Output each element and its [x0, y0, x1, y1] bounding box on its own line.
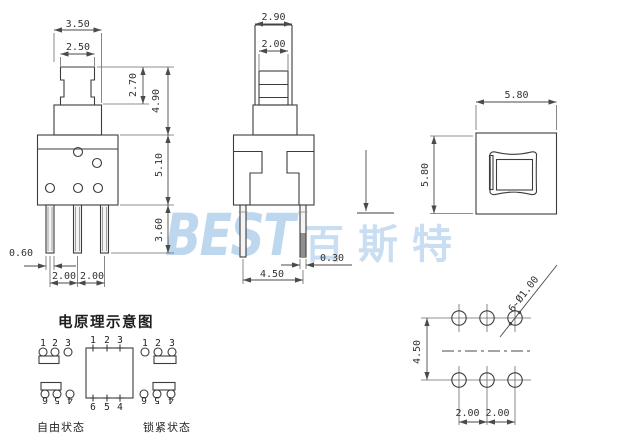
dim-front-width-cap: 2.50	[66, 42, 90, 53]
connection-1-2	[39, 356, 59, 364]
side-body-contour-right	[287, 152, 314, 206]
top-button-left-bar	[490, 156, 494, 190]
schematic-title: 电原理示意图	[58, 313, 154, 331]
pin-number: 2	[104, 335, 110, 346]
pin-number: 2	[52, 338, 58, 349]
schematic: 电原理示意图 1 2 3 6 5 4 自由状态	[37, 313, 191, 434]
pcb-lines	[421, 304, 534, 425]
pcb-hole-leader	[500, 265, 557, 337]
pin-number: 5	[54, 394, 60, 405]
pin-number: 5	[104, 402, 110, 413]
pin-number: 1	[40, 338, 46, 349]
switch-body	[86, 348, 133, 398]
terminal-marks	[89, 345, 124, 402]
pin-number: 4	[67, 394, 73, 405]
top-body	[476, 133, 557, 214]
pin-number: 6	[42, 394, 48, 405]
dim-side-pin-thickness: 0.30	[320, 253, 344, 264]
front-outline	[38, 67, 119, 253]
top-dimensions: 5.80 5.80	[420, 90, 557, 214]
dim-front-pin-length: 3.60	[154, 218, 165, 242]
drawing-canvas: 3.50 2.50 2.70 4.90 5.10 3.60 0.60 2.00 …	[0, 0, 627, 443]
pin-number: 5	[154, 394, 160, 405]
side-dimensions: 2.90 2.00 0.30 4.50	[243, 12, 352, 284]
front-body	[38, 135, 119, 205]
top-button-inner	[497, 160, 533, 191]
pin-number: 2	[155, 338, 161, 349]
dim-front-pin-pitch-b: 2.00	[80, 271, 104, 282]
top-view: 5.80 5.80	[420, 90, 557, 214]
dim-pcb-col-pitch-b: 2.00	[485, 408, 509, 419]
side-pedestal	[253, 105, 297, 135]
front-view: 3.50 2.50 2.70 4.90 5.10 3.60 0.60 2.00 …	[9, 19, 174, 287]
front-pedestal	[54, 105, 102, 135]
top-outline	[476, 133, 557, 214]
pin-number: 6	[141, 394, 147, 405]
locked-state-label: 锁紧状态	[143, 420, 191, 434]
dim-side-width-top: 2.90	[261, 12, 285, 23]
dim-front-height-above-base: 4.90	[151, 89, 162, 113]
dim-top-width: 5.80	[504, 90, 528, 101]
connection-5-4	[153, 383, 175, 391]
technical-drawing: BEST 百斯特	[0, 0, 627, 443]
dim-side-width-cap: 2.00	[261, 39, 285, 50]
pin-number: 1	[142, 338, 148, 349]
schematic-locked-state: 1 2 3 6 5 4 锁紧状态	[140, 338, 191, 434]
pin-number: 3	[117, 335, 123, 346]
pin-number: 4	[117, 402, 123, 413]
schematic-center-block: 1 2 3 6 5 4	[86, 335, 133, 413]
dim-side-pin-span: 4.50	[260, 269, 284, 280]
dim-pcb-row-pitch: 4.50	[412, 340, 423, 364]
connection-6-5	[41, 383, 61, 391]
dim-front-pin-pitch-a: 2.00	[52, 271, 76, 282]
dim-front-btn-height: 2.70	[128, 73, 139, 97]
pcb-layout: 4.50 2.00 2.00 6-Ø1.00	[412, 265, 557, 425]
side-body	[234, 135, 315, 205]
pin-number: 1	[90, 335, 96, 346]
pin-number: 3	[65, 338, 71, 349]
front-pins	[46, 205, 109, 253]
pin-number: 4	[168, 394, 174, 405]
side-stem	[259, 71, 288, 105]
connection-2-3	[154, 356, 176, 364]
side-pins	[239, 205, 308, 257]
pcb-hole-callout: 6-Ø1.00	[506, 274, 541, 315]
front-button-profile	[61, 67, 95, 105]
pin-number: 3	[169, 338, 175, 349]
dim-front-width-top: 3.50	[66, 19, 90, 30]
front-dimensions: 3.50 2.50 2.70 4.90 5.10 3.60 0.60 2.00 …	[9, 19, 174, 287]
pcb-dimensions: 4.50 2.00 2.00 6-Ø1.00	[412, 265, 557, 422]
side-view: 2.90 2.00 0.30 4.50	[234, 12, 395, 284]
pin-number: 6	[90, 402, 96, 413]
schematic-free-state: 1 2 3 6 5 4 自由状态	[37, 338, 85, 434]
side-body-contour-left	[234, 152, 263, 206]
free-state-label: 自由状态	[37, 420, 85, 434]
dim-pcb-col-pitch-a: 2.00	[455, 408, 479, 419]
front-body-holes	[46, 148, 103, 193]
side-outline	[234, 25, 395, 257]
dim-front-body-height: 5.10	[154, 153, 165, 177]
side-extension-lines	[243, 54, 306, 284]
dim-top-height: 5.80	[420, 163, 431, 187]
dim-front-pin-width: 0.60	[9, 248, 33, 259]
